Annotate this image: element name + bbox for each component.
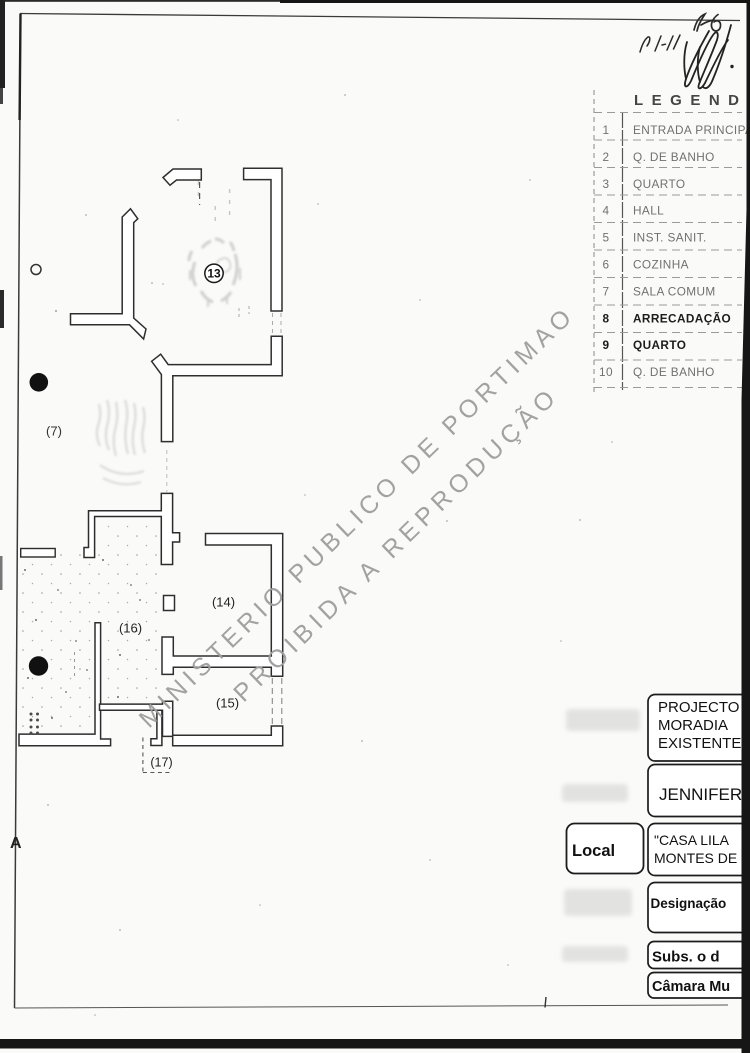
svg-text:13: 13 [207,267,221,281]
svg-text:(14): (14) [212,594,235,609]
svg-text:(15): (15) [216,695,239,710]
svg-text:Subs. o d: Subs. o d [652,949,720,966]
svg-text:6: 6 [603,258,610,272]
svg-text:4: 4 [603,204,610,218]
svg-text:QUARTO: QUARTO [633,338,686,352]
svg-text:Q. DE BANHO: Q. DE BANHO [633,150,715,164]
svg-text:JENNIFER: JENNIFER [659,785,742,804]
svg-text:PROJECTO: PROJECTO [658,699,739,716]
svg-text:MONTES DE: MONTES DE [654,850,737,866]
svg-text:2: 2 [603,150,610,164]
svg-text:10: 10 [599,365,613,379]
svg-text:(7): (7) [46,424,62,439]
svg-text:LEGENDA: LEGENDA [634,92,750,109]
svg-text:COZINHA: COZINHA [633,258,689,272]
svg-text:QUARTO: QUARTO [633,177,685,191]
svg-text:ENTRADA PRINCIPAL: ENTRADA PRINCIPAL [633,123,750,137]
svg-text:(17): (17) [150,756,172,770]
svg-text:MORADIA: MORADIA [658,717,728,734]
svg-text:A: A [10,835,22,852]
svg-text:ARRECADAÇÃO: ARRECADAÇÃO [633,311,731,325]
svg-text:EXISTENTE: EXISTENTE [658,735,741,752]
svg-text:Q. DE BANHO: Q. DE BANHO [633,365,715,379]
svg-text:HALL: HALL [633,204,664,218]
svg-text:SALA COMUM: SALA COMUM [633,284,716,298]
svg-text:Câmara Mu: Câmara Mu [652,979,730,995]
svg-text:7: 7 [603,284,610,298]
svg-text:3: 3 [603,177,610,191]
svg-text:Designação: Designação [651,896,727,911]
svg-text:INST. SANIT.: INST. SANIT. [633,231,707,245]
svg-text:(16): (16) [119,621,142,636]
svg-text:9: 9 [603,338,610,352]
svg-text:"CASA LILA: "CASA LILA [654,832,730,848]
svg-text:Local: Local [572,842,615,860]
svg-text:5: 5 [603,231,610,245]
svg-text:8: 8 [603,311,610,325]
svg-text:1: 1 [603,123,610,137]
